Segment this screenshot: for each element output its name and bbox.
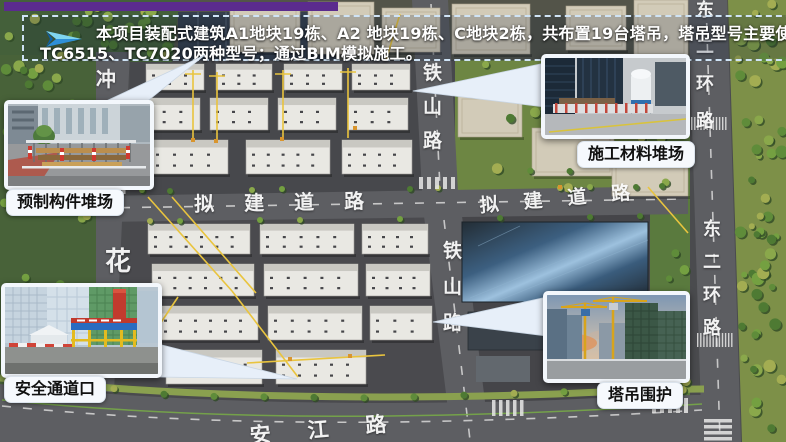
prefab-yard-label: 预制构件堆场 <box>6 189 124 216</box>
prefab-yard-photo <box>4 100 154 190</box>
material-yard-photo <box>541 54 690 139</box>
material-yard-label: 施工材料堆场 <box>577 141 695 168</box>
safety-passage-photo <box>1 283 162 378</box>
bim-site-overview: 铁山路铁山路拟建道路拟建道路东二环路东二环路花冲安江路 本项目装配式建筑A1地块… <box>0 0 786 442</box>
safety-passage-label: 安全通道口 <box>4 376 106 403</box>
banner-text-line2: TC6515、TC7020两种型号；通过BIM模拟施工。 <box>40 40 422 64</box>
purple-accent-bar <box>4 2 338 11</box>
crane-enclosure-label: 塔吊围护 <box>597 382 683 409</box>
crane-enclosure-photo <box>543 291 690 383</box>
